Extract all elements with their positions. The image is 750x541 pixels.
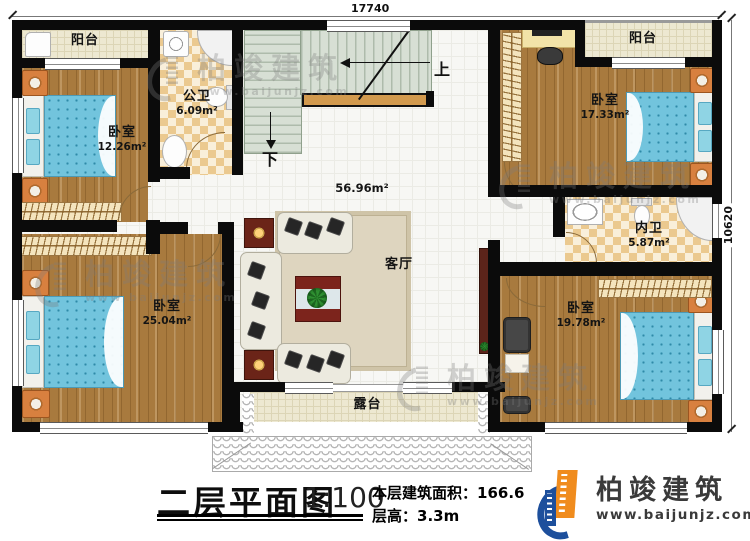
room-label-bedroom-tl: 卧室12.26m² [76, 126, 168, 153]
pillow-icon [26, 108, 41, 134]
sink-symbol [163, 31, 189, 57]
cushion-icon [326, 217, 345, 236]
stair-flight-down [244, 30, 302, 154]
room-label-balcony-tl: 阳台 [60, 34, 110, 49]
window [12, 98, 24, 173]
wall [488, 185, 722, 197]
company-logo: 柏竣建筑 www.baijunjz.com [538, 468, 750, 532]
wardrobe-symbol [502, 32, 522, 162]
wall [228, 382, 240, 430]
washbasin-symbol [25, 32, 51, 57]
wall [160, 222, 188, 234]
stair-direction-line [346, 62, 430, 63]
room-label-balcony-tr: 阳台 [618, 32, 668, 47]
company-name: 柏竣建筑 [596, 477, 750, 504]
nightstand-symbol [688, 400, 714, 423]
title-underline [157, 519, 363, 521]
wall [232, 20, 243, 175]
cushion-icon [247, 261, 266, 280]
roof-scallop-strip [242, 394, 254, 436]
pillow-icon [26, 311, 41, 340]
pillow-icon [698, 102, 713, 124]
dimension-tick [717, 10, 726, 19]
sofa-symbol [277, 343, 351, 384]
mattress [44, 296, 124, 388]
stair-wall-stub [426, 91, 434, 107]
room-label-terrace: 露台 [340, 398, 395, 413]
armchair-symbol [503, 317, 531, 353]
wall [148, 167, 190, 179]
living-area-label: 56.96m² [327, 182, 397, 195]
window [712, 330, 724, 394]
pillow-icon [698, 130, 713, 152]
nightstand-symbol [690, 163, 714, 187]
wardrobe-symbol [20, 236, 152, 256]
window [40, 422, 208, 434]
bed-symbol [620, 312, 716, 400]
balcony-railing [585, 20, 712, 23]
window [45, 58, 120, 70]
room-label-bedroom-tr: 卧室17.33m² [570, 94, 640, 121]
bed-symbol [22, 296, 124, 388]
stair-arrow-icon [340, 58, 350, 68]
wall [12, 220, 117, 232]
stairs-up-label: 上 [434, 56, 450, 80]
nightstand-symbol [22, 270, 49, 296]
cushion-icon [284, 217, 303, 236]
terrace-window [285, 382, 333, 394]
right-dimension-label: 10620 [722, 203, 735, 247]
company-logo-icon [538, 468, 588, 532]
wall [553, 197, 565, 237]
top-dimension-line [12, 16, 722, 17]
computer-icon [532, 30, 562, 36]
vanity-sink-symbol [567, 199, 603, 225]
floor-area-value: 166.6 [477, 484, 524, 502]
floor-plan-sheet: 17740 10620 上 下 [0, 0, 750, 541]
company-url: www.baijunjz.com [596, 509, 750, 523]
window [612, 57, 685, 69]
headboard [22, 296, 44, 388]
wardrobe-symbol [20, 202, 122, 222]
chair-symbol [537, 47, 563, 65]
pillow-icon [698, 326, 713, 354]
nightstand-symbol [22, 70, 48, 96]
sofa-symbol [240, 252, 282, 350]
pillow-icon [26, 345, 41, 374]
stair-direction-line [270, 112, 271, 142]
side-table-lamp-symbol [244, 218, 274, 248]
top-dimension-label: 17740 [348, 2, 392, 15]
cushion-icon [284, 350, 303, 369]
wall [146, 220, 160, 254]
wall [218, 222, 234, 234]
floor-height-label: 层高： [372, 507, 417, 525]
floor-area-label: 本层建筑面积： [372, 484, 477, 502]
title-underline [157, 514, 363, 517]
window [12, 300, 24, 386]
mattress [620, 312, 694, 400]
armchair-symbol [503, 396, 531, 414]
terrace-window [403, 382, 452, 394]
stair-handrail [302, 93, 434, 107]
sofa-symbol [277, 212, 353, 254]
room-label-living: 客厅 [374, 258, 424, 273]
plan-info: 本层建筑面积：166.6 层高：3.3m [372, 482, 524, 529]
side-table-lamp-symbol [244, 350, 274, 380]
roof-scallop-band [212, 436, 532, 472]
wardrobe-symbol [598, 279, 712, 298]
window [545, 422, 687, 434]
dimension-tick [8, 10, 17, 19]
wall [488, 28, 500, 197]
cushion-icon [306, 354, 325, 373]
wall [488, 262, 722, 276]
nightstand-symbol [22, 390, 50, 418]
wall [148, 20, 160, 182]
window [327, 20, 410, 32]
wall [234, 382, 285, 392]
room-label-bath-ensuite: 内卫5.87m² [618, 222, 680, 249]
plant-icon [307, 288, 327, 308]
cushion-icon [247, 321, 266, 340]
nightstand-symbol [22, 178, 48, 204]
floor-height-value: 3.3m [417, 507, 459, 525]
cushion-icon [251, 291, 270, 310]
cushion-icon [326, 350, 345, 369]
room-label-bedroom-br: 卧室19.78m² [546, 302, 616, 329]
room-label-bath-public: 公卫6.09m² [166, 90, 228, 117]
side-table-symbol [505, 354, 529, 373]
wall [12, 20, 327, 30]
pillow-icon [26, 139, 41, 165]
pillow-icon [698, 359, 713, 387]
cushion-icon [304, 221, 323, 240]
headboard [22, 95, 44, 177]
sliding-door [333, 384, 403, 392]
wall [488, 240, 500, 422]
stairs-down-label: 下 [262, 146, 278, 170]
nightstand-symbol [690, 68, 714, 93]
room-label-bedroom-bl: 卧室25.04m² [132, 300, 202, 327]
